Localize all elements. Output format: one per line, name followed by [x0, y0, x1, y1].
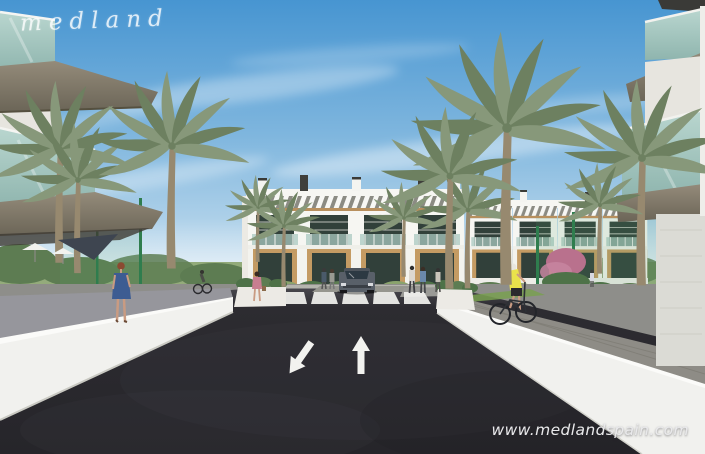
- right-planter: [435, 280, 478, 310]
- brand-watermark: medland: [20, 5, 171, 36]
- render-image: medland www.medlandspain.com: [0, 0, 705, 454]
- website-url-text: www.medlandspain.com: [492, 421, 689, 439]
- scene-canvas: [0, 0, 705, 454]
